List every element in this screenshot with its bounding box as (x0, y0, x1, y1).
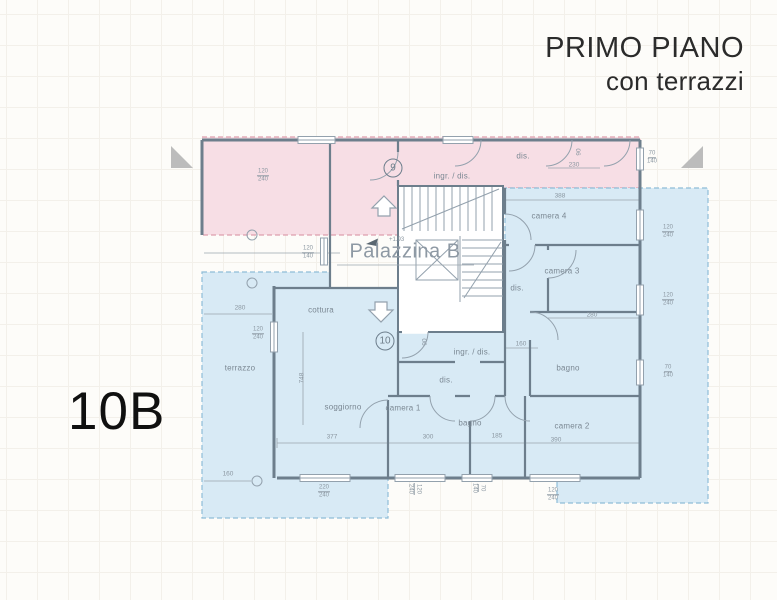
room-label: camera 4 (532, 212, 567, 221)
room-label: dis. (510, 284, 523, 293)
unit-10b-label: 10B (68, 381, 165, 442)
window-dimension-label: 120240 (406, 483, 421, 495)
room-label: camera 1 (386, 404, 421, 413)
window-dimension-label: 120240 (257, 168, 269, 183)
dimension-label: 300 (423, 434, 434, 441)
level-marker-label: +1.93 (389, 237, 404, 243)
floorplan-page: PRIMO PIANO con terrazzi 10B Palazzina B… (0, 0, 777, 600)
window-dimension-label: 120240 (547, 487, 559, 502)
dimension-label: 280 (587, 312, 598, 319)
room-label: bagno (458, 419, 481, 428)
window-dimension-label: 220240 (318, 484, 330, 499)
dimension-label: 388 (555, 193, 566, 200)
room-label: camera 3 (545, 267, 580, 276)
room-label: cottura (308, 306, 334, 315)
dimension-label: 377 (327, 434, 338, 441)
building-label: Palazzina B (349, 241, 460, 264)
dimension-label: 90 (422, 338, 429, 345)
window-dimension-label: 120240 (662, 292, 674, 307)
dimension-label: 160 (223, 471, 234, 478)
room-label: soggiorno (325, 403, 362, 412)
unit-number-badge: 10 (376, 332, 395, 351)
dimension-label: 160 (516, 341, 527, 348)
dimension-label: 280 (235, 305, 246, 312)
dimension-label: 390 (551, 437, 562, 444)
room-label: bagno (556, 364, 579, 373)
window-dimension-label: 70140 (647, 150, 657, 165)
room-label: dis. (516, 152, 529, 161)
room-label: ingr. / dis. (454, 348, 491, 357)
window-dimension-label: 120240 (252, 326, 264, 341)
room-label: terrazzo (225, 364, 256, 373)
title-line-1: PRIMO PIANO (545, 32, 744, 65)
dimension-label: 230 (569, 162, 580, 169)
room-label: ingr. / dis. (434, 172, 471, 181)
page-title: PRIMO PIANO con terrazzi (545, 32, 744, 98)
corner-marker-right-icon (681, 146, 703, 168)
room-label: dis. (439, 376, 452, 385)
corner-marker-left-icon (171, 146, 193, 168)
title-line-2: con terrazzi (545, 65, 744, 98)
window-dimension-label: 120140 (302, 245, 314, 260)
window-dimension-label: 70140 (663, 364, 673, 379)
window-dimension-label: 120240 (662, 224, 674, 239)
room-label: camera 2 (555, 422, 590, 431)
unit-number-badge: 9 (384, 159, 403, 178)
dimension-label: 748 (299, 373, 306, 384)
dimension-label: 185 (492, 433, 503, 440)
window-dimension-label: 70140 (470, 483, 485, 493)
dimension-label: 90 (576, 148, 583, 155)
